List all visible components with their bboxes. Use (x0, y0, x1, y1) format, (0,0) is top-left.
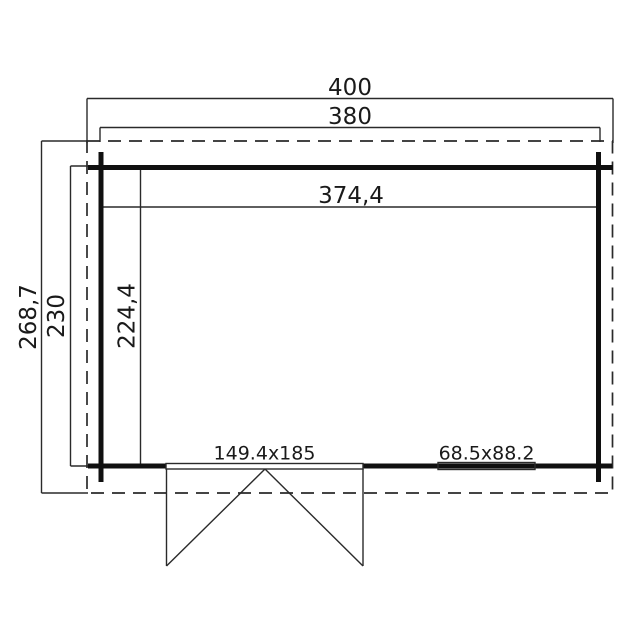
dim-wall-depth-label: 230 (44, 294, 70, 338)
dim-wall-width: 380 (100, 104, 600, 142)
dim-interior-width-label: 374,4 (318, 183, 384, 209)
double-door: 149.4x185 (166, 443, 363, 567)
dim-interior-depth-label: 224,4 (115, 283, 141, 349)
door-swing-left (167, 469, 266, 566)
door-swing-right (265, 469, 363, 566)
floorplan-canvas: 400 380 268,7 230 374,4 (0, 0, 636, 636)
door-size-label: 149.4x185 (214, 443, 316, 465)
floorplan-drawing: 400 380 268,7 230 374,4 (0, 0, 636, 636)
dim-interior-depth: 224,4 (115, 170, 141, 464)
dim-wall-depth: 230 (44, 166, 92, 466)
dim-wall-width-label: 380 (328, 104, 372, 130)
dim-roof-depth-label: 268,7 (16, 284, 42, 350)
dim-roof-width-label: 400 (328, 75, 372, 101)
dim-interior-width: 374,4 (104, 183, 597, 209)
window-size-label: 68.5x88.2 (439, 443, 535, 465)
